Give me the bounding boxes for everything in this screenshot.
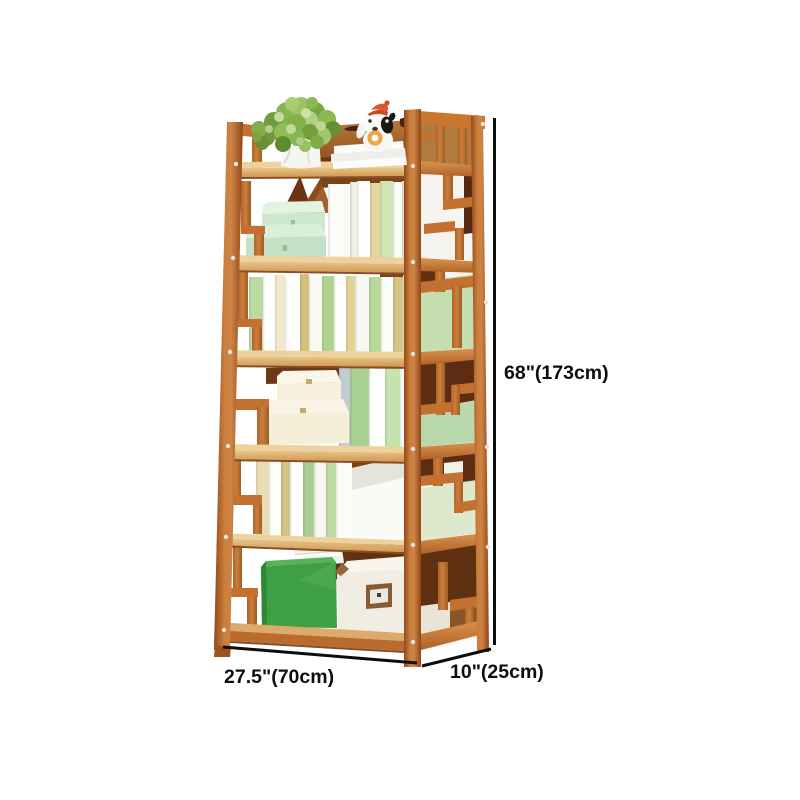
svg-text:68"(173cm): 68"(173cm) [504, 362, 609, 384]
svg-text:10"(25cm): 10"(25cm) [450, 661, 544, 683]
svg-text:27.5"(70cm): 27.5"(70cm) [224, 666, 334, 688]
